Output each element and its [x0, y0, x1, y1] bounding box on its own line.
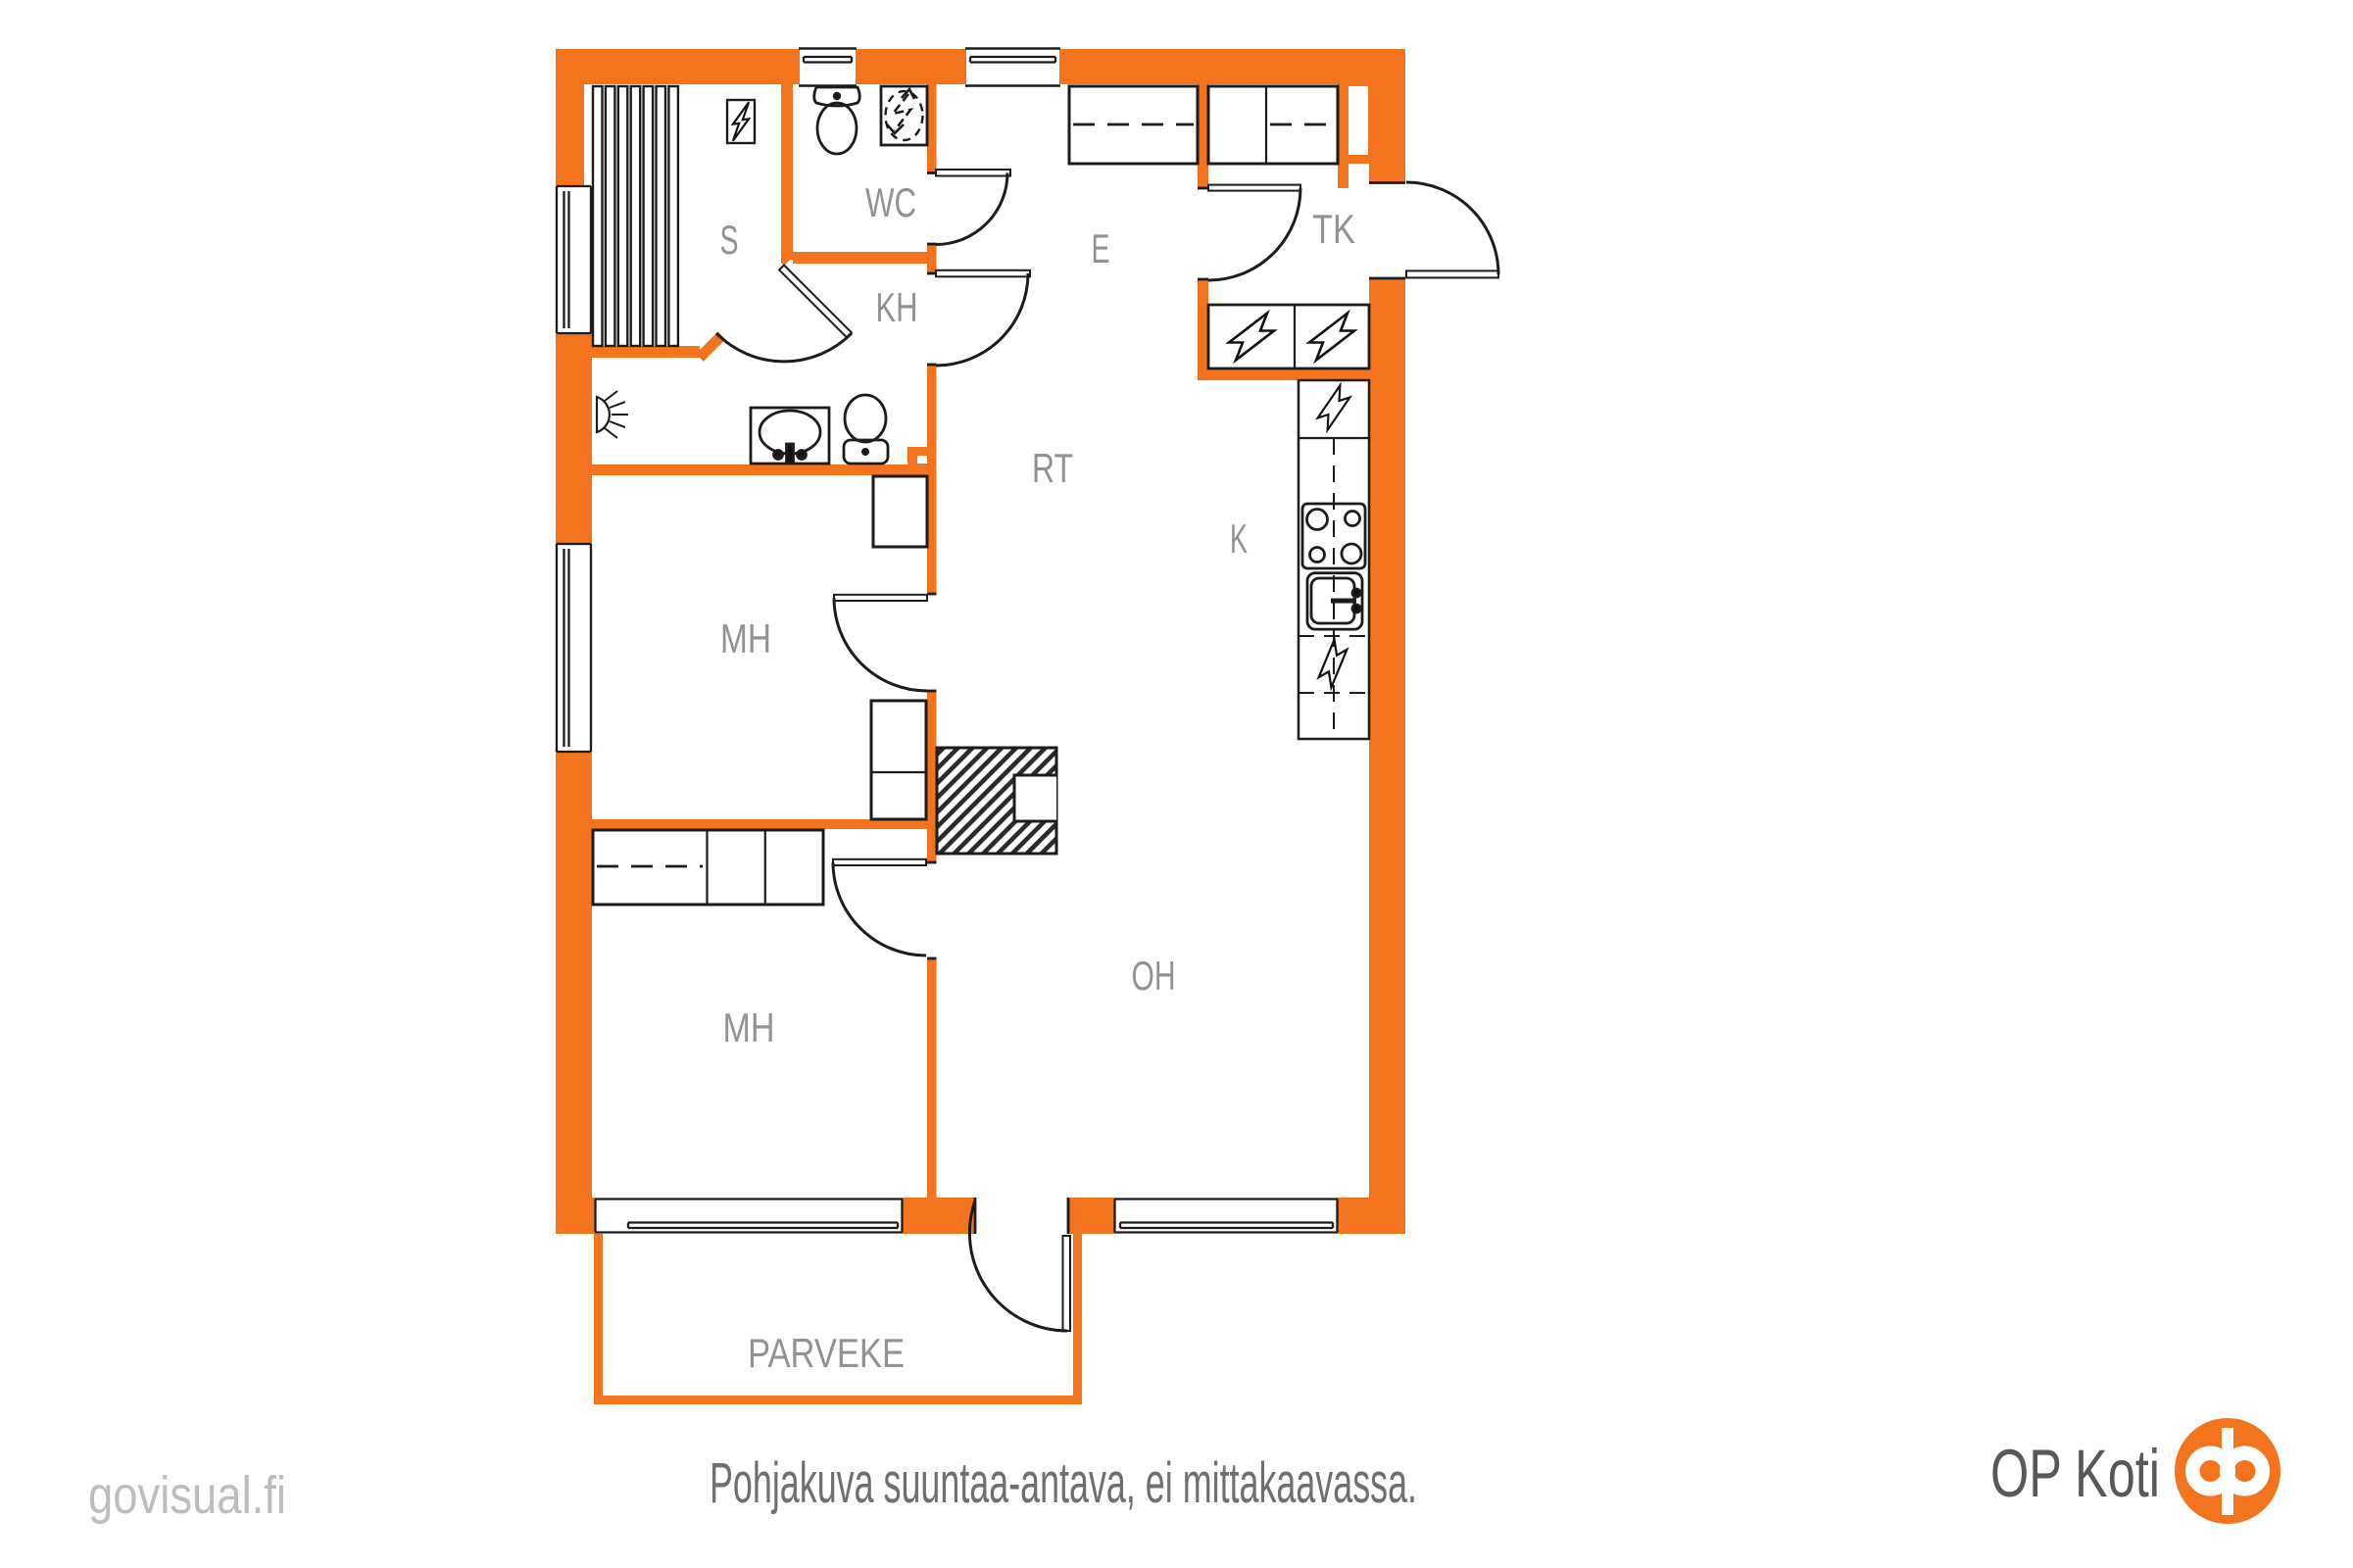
- svg-text:MH: MH: [723, 1004, 775, 1051]
- svg-text:MH: MH: [720, 615, 771, 661]
- svg-text:K: K: [1230, 515, 1248, 562]
- svg-text:S: S: [720, 217, 739, 263]
- svg-text:OP Koti: OP Koti: [1990, 1436, 2160, 1511]
- svg-text:govisual.fi: govisual.fi: [88, 1466, 286, 1525]
- svg-text:TK: TK: [1312, 206, 1355, 252]
- svg-text:PARVEKE: PARVEKE: [748, 1330, 905, 1376]
- svg-text:KH: KH: [876, 284, 918, 330]
- svg-text:RT: RT: [1032, 445, 1073, 491]
- svg-text:E: E: [1092, 225, 1110, 271]
- svg-text:WC: WC: [865, 179, 916, 225]
- svg-text:OH: OH: [1132, 953, 1176, 999]
- svg-text:Pohjakuva suuntaa-antava, ei m: Pohjakuva suuntaa-antava, ei mittakaavas…: [710, 1451, 1417, 1515]
